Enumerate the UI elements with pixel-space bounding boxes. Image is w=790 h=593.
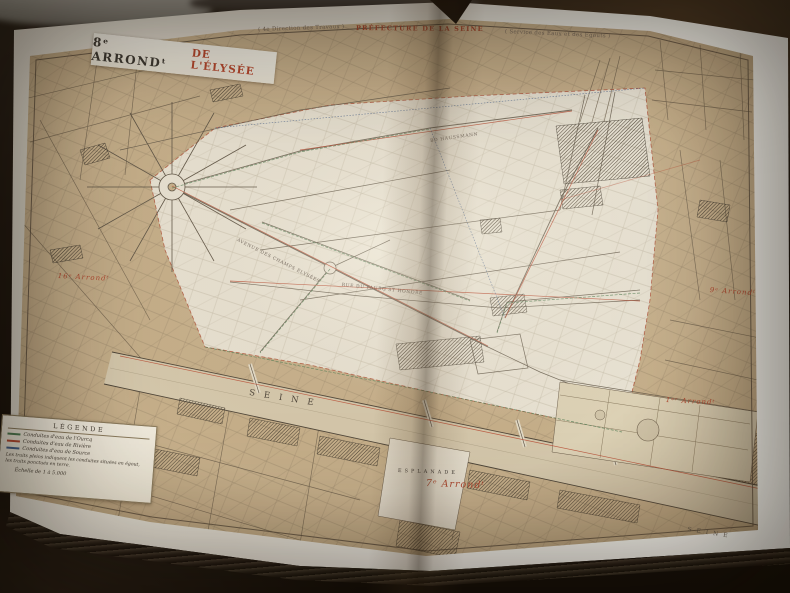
legend-swatch-ourcq (7, 432, 20, 435)
legend-swatch-source (6, 446, 19, 449)
map-engraving (0, 0, 790, 593)
legend-swatch-riviere (7, 439, 20, 442)
photo-of-atlas: ( 4e Direction des Travaux ) PRÉFECTURE … (0, 0, 790, 593)
running-head-title: PRÉFECTURE DE LA SEINE (356, 24, 484, 33)
label-arrond-south: 7ᵉ Arrondᵗ (426, 478, 485, 491)
arrondissement-name: DE L'ÉLYSÉE (190, 47, 277, 80)
legend-box: LÉGENDE Conduites d'eau de l'Ourcq Condu… (0, 414, 158, 504)
